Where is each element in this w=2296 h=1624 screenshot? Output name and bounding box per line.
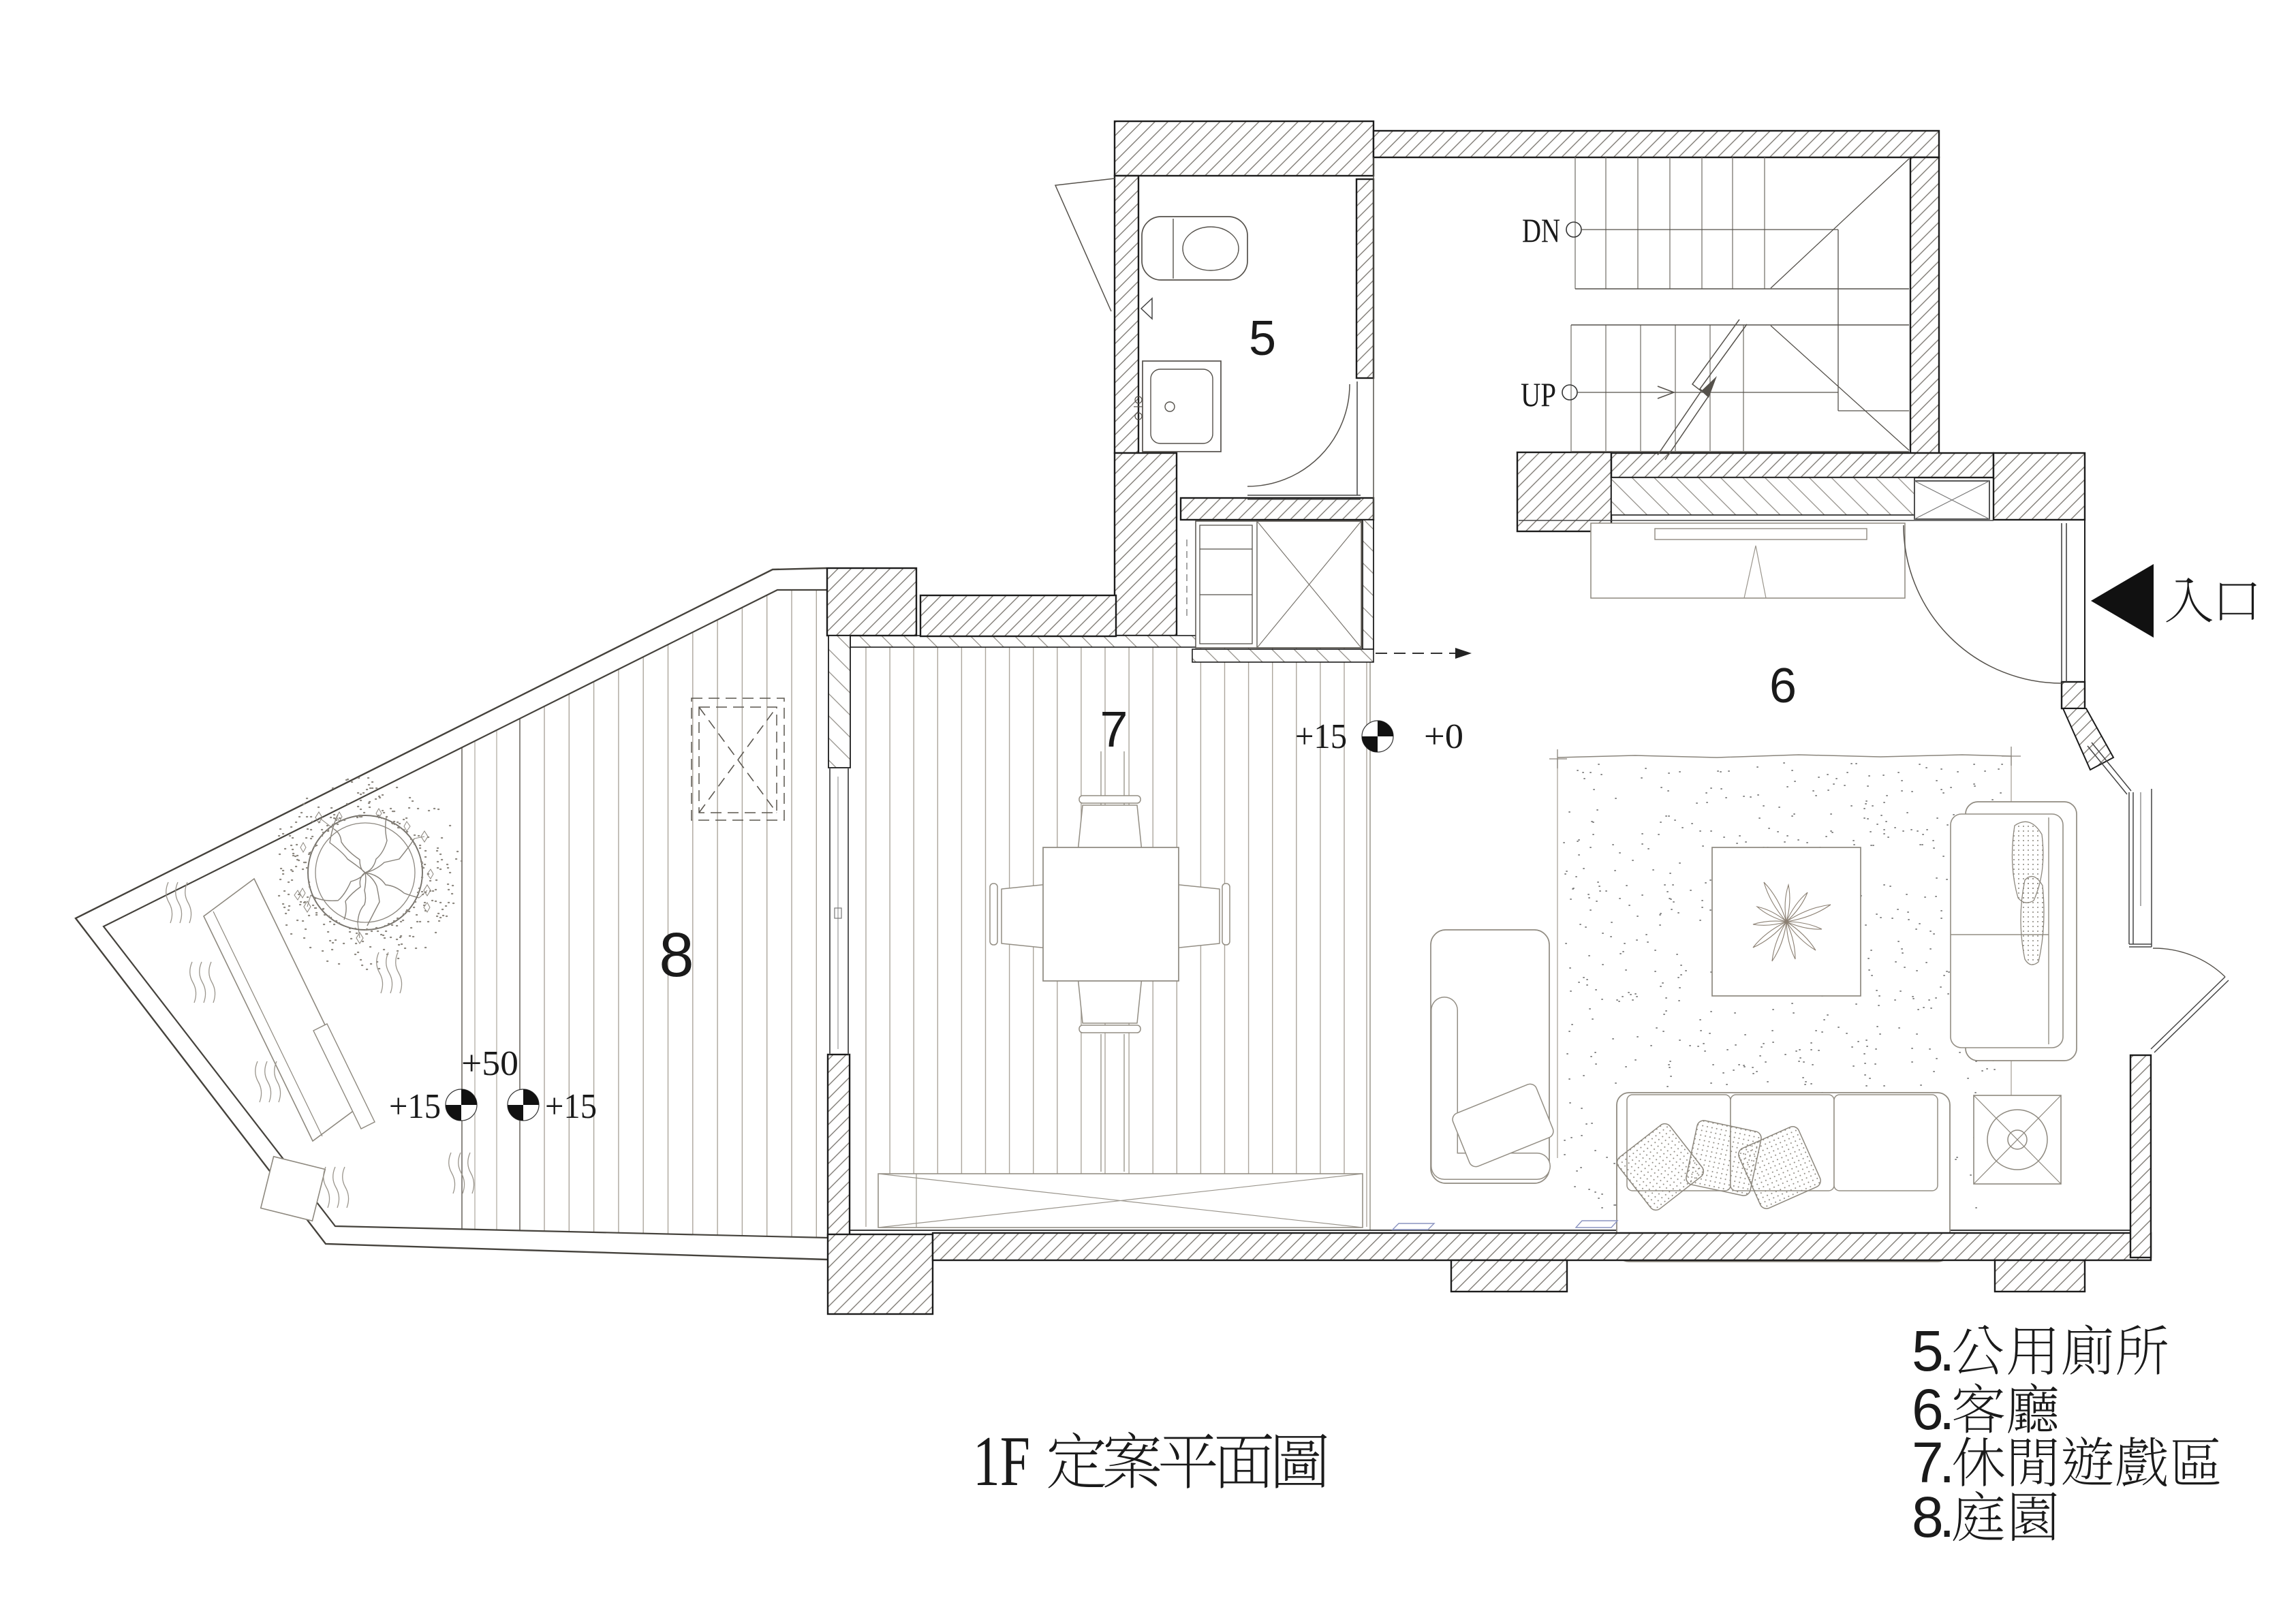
svg-text:+0: +0	[1424, 717, 1463, 756]
svg-text:DN: DN	[1522, 211, 1560, 249]
svg-text:+15: +15	[545, 1087, 597, 1126]
svg-text:5: 5	[1249, 311, 1276, 366]
svg-text:UP: UP	[1521, 375, 1556, 413]
svg-text:8: 8	[659, 920, 694, 990]
svg-text:+15: +15	[389, 1087, 441, 1126]
svg-text:1F: 1F	[973, 1421, 1030, 1501]
svg-text:+50: +50	[461, 1044, 518, 1083]
svg-text:.: .	[1939, 1319, 1955, 1383]
svg-text:.: .	[1939, 1485, 1955, 1549]
svg-text:+15: +15	[1295, 717, 1347, 756]
svg-text:6: 6	[1769, 659, 1797, 713]
svg-text:7: 7	[1100, 701, 1128, 758]
